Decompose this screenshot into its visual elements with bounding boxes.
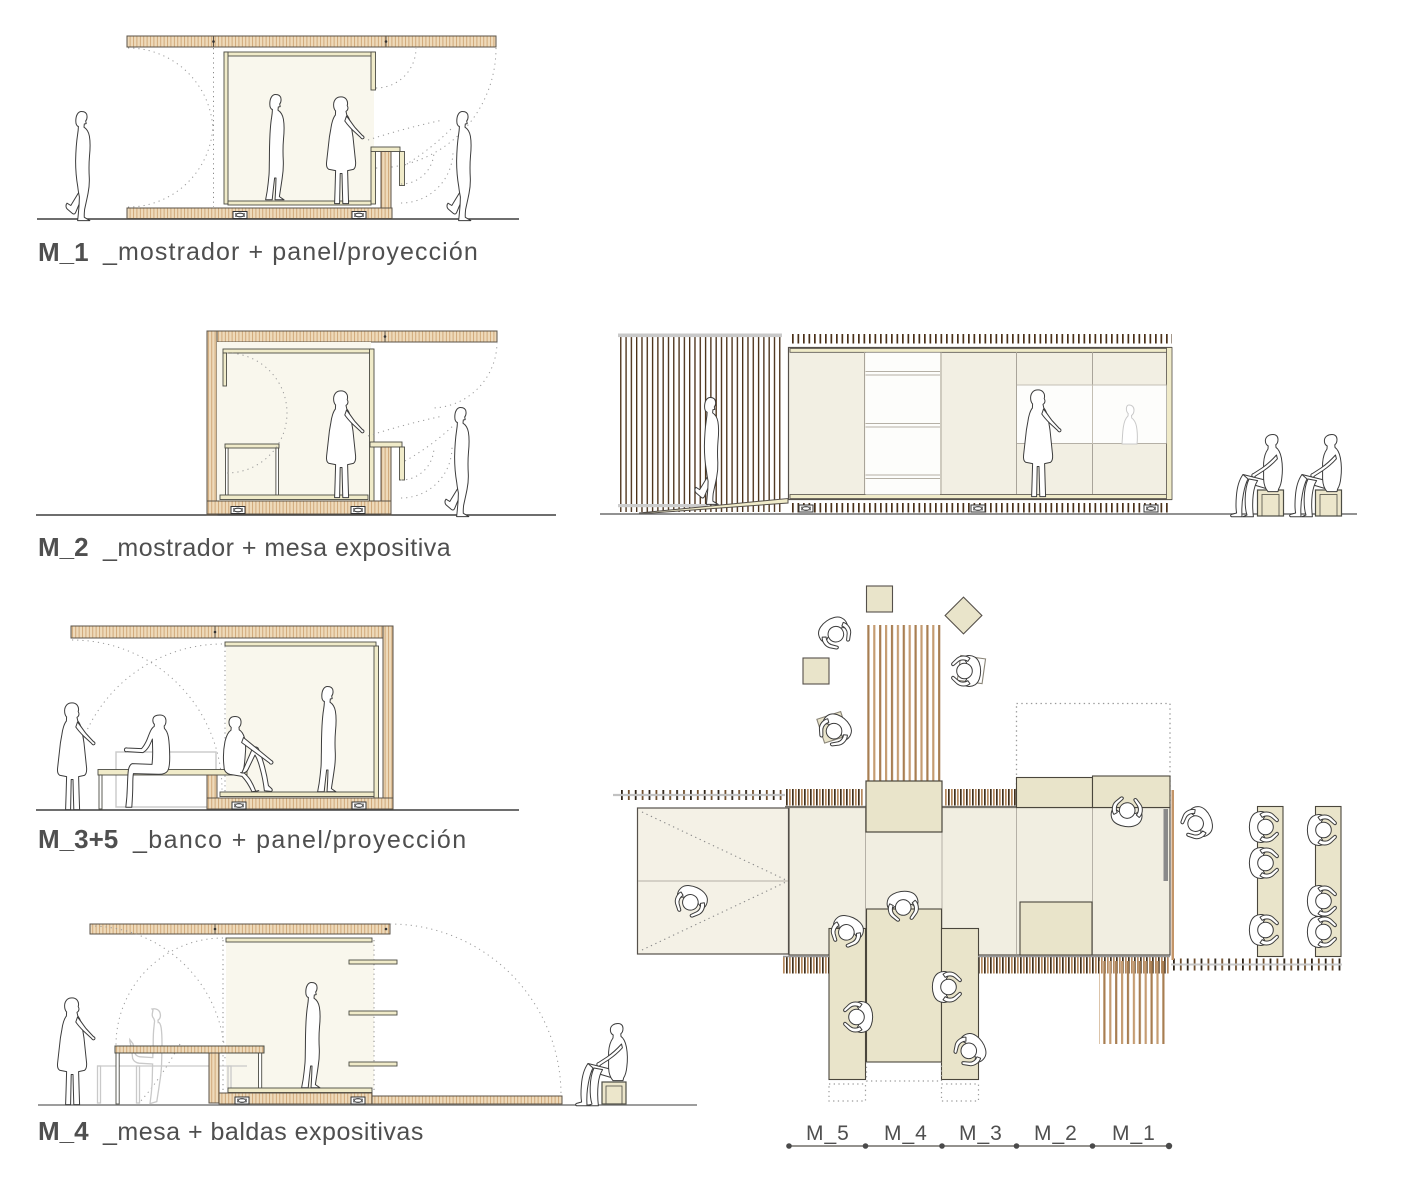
- svg-text:M_4: M_4: [884, 1122, 928, 1145]
- svg-text:_mesa + baldas expositivas: _mesa + baldas expositivas: [102, 1118, 424, 1146]
- svg-text:M_3+5: M_3+5: [38, 824, 118, 854]
- svg-text:M_5: M_5: [806, 1122, 850, 1145]
- svg-text:M_1: M_1: [1112, 1122, 1156, 1145]
- svg-text:_mostrador + panel/proyección: _mostrador + panel/proyección: [102, 238, 479, 266]
- svg-text:M_1: M_1: [38, 237, 89, 267]
- svg-text:M_3: M_3: [959, 1122, 1003, 1145]
- svg-text:_banco + panel/proyección: _banco + panel/proyección: [132, 826, 468, 854]
- svg-text:M_2: M_2: [38, 532, 89, 562]
- svg-text:M_4: M_4: [38, 1116, 89, 1146]
- svg-text:M_2: M_2: [1034, 1122, 1078, 1145]
- svg-text:_mostrador + mesa expositiva: _mostrador + mesa expositiva: [102, 534, 451, 562]
